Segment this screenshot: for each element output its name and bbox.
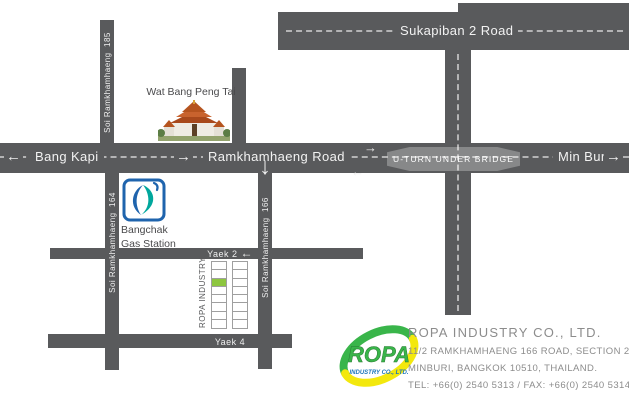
plot-cell	[233, 279, 247, 287]
arrow-left-lower-lane: ←	[349, 165, 366, 178]
plot-cell-ropa-highlight	[212, 279, 226, 287]
ropa-logo-word: ROPA	[348, 342, 410, 367]
plot-cell	[233, 320, 247, 328]
company-address-line2: MINBURI, BANGKOK 10510, THAILAND.	[408, 363, 597, 374]
plot-cell	[212, 287, 226, 295]
label-soi-ramkhamhaeng-164: Soi Ramkhamhaeng 164	[105, 176, 119, 308]
arrow-right-min-buri: →	[604, 149, 623, 164]
plot-cell	[212, 295, 226, 303]
arrow-left-yaek-2: ←	[241, 249, 254, 258]
plot-strip-right	[232, 261, 248, 329]
label-wat-bang-peng-tai: Wat Bang Peng Tai	[146, 86, 236, 98]
plot-cell	[233, 287, 247, 295]
arrow-right-mid: →	[174, 149, 193, 164]
plot-cell	[212, 262, 226, 270]
temple-image	[158, 100, 230, 141]
label-ramkhamhaeng-road: Ramkhamhaeng Road	[203, 149, 350, 164]
plot-cell	[233, 262, 247, 270]
road-temple-side	[232, 68, 246, 143]
company-address-line1: 11/2 RAMKHAMHAENG 166 ROAD, SECTION 2	[408, 346, 629, 357]
plot-cell	[212, 303, 226, 311]
label-yaek-4: Yaek 4	[200, 335, 260, 348]
plot-cell	[233, 270, 247, 278]
ropa-logo-tagline: INDUSTRY CO., LTD.	[349, 370, 408, 376]
label-bangchak-gas-station: Bangchak Gas Station	[121, 223, 176, 251]
road-sukapiban-2-upper-edge	[458, 3, 629, 13]
label-ropa-industry-site: ROPA INDUSTRY	[195, 256, 210, 328]
plot-cell	[212, 270, 226, 278]
arrow-left-bang-kapi: ←	[4, 149, 23, 164]
label-soi-ramkhamhaeng-166: Soi Ramkhamhaeng 166	[258, 182, 272, 312]
location-map: ← Bang Kapi → Ramkhamhaeng Road → ← U-TU…	[0, 0, 629, 402]
plot-cell	[212, 312, 226, 320]
centerline-bridge-cross	[457, 54, 459, 311]
company-contact: TEL: +66(0) 2540 5313 / FAX: +66(0) 2540…	[408, 380, 629, 391]
label-sukapiban-2-road: Sukapiban 2 Road	[395, 23, 518, 38]
label-soi-ramkhamhaeng-185: Soi Ramkhamhaeng 185	[100, 22, 114, 142]
company-name: ROPA INDUSTRY CO., LTD.	[408, 325, 602, 340]
plot-cell	[212, 320, 226, 328]
arrow-right-upper-lane: →	[362, 141, 379, 154]
plot-strip-left	[211, 261, 227, 329]
arrow-down-soi-166: ↓	[256, 152, 274, 182]
u-turn-under-bridge-sign: U-TURN UNDER BRIDGE	[387, 147, 520, 171]
plot-cell	[233, 303, 247, 311]
plot-cell	[233, 295, 247, 303]
plot-cell	[233, 312, 247, 320]
label-bang-kapi: Bang Kapi	[30, 149, 104, 164]
bangchak-logo	[122, 178, 166, 222]
